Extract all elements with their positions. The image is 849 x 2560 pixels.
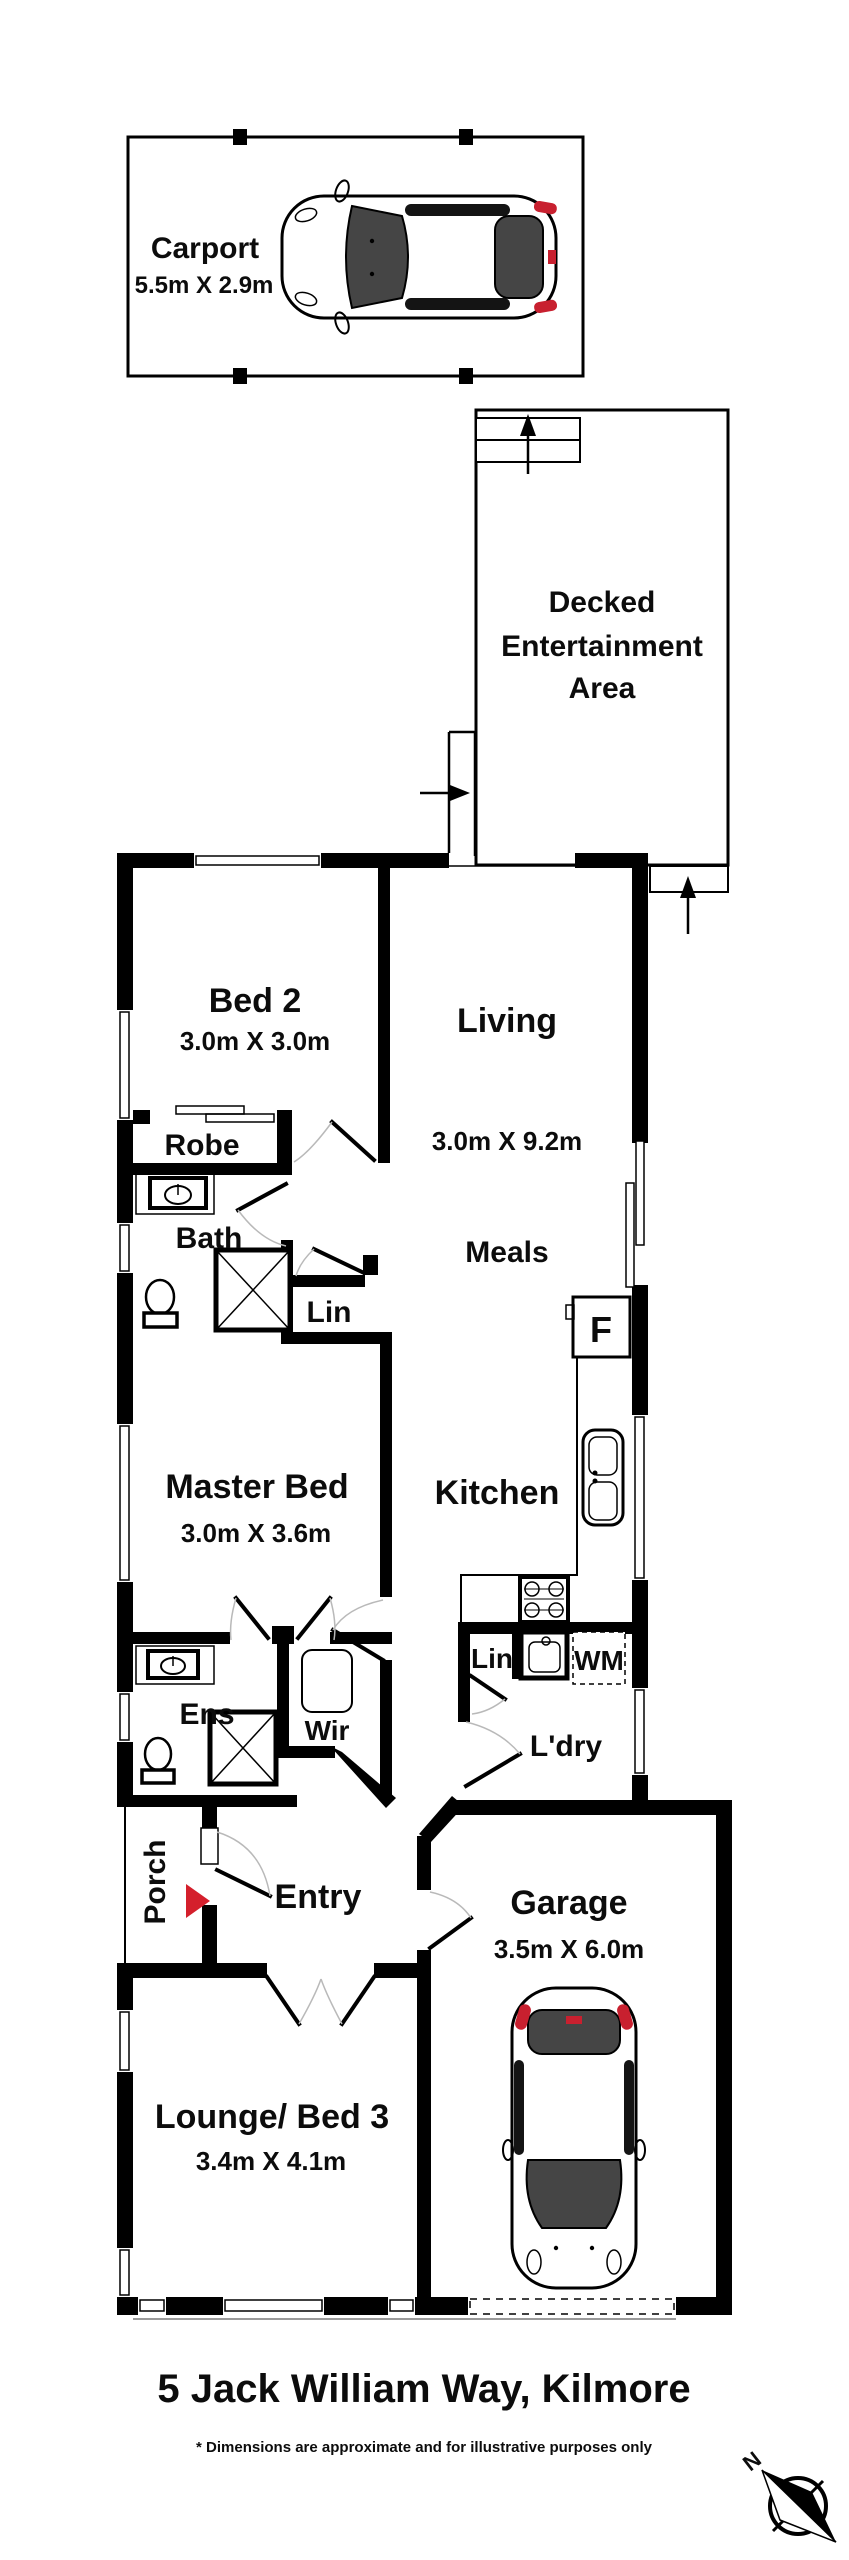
compass-north-label: N [738,2447,766,2476]
porch-label: Porch [139,1839,172,1924]
disclaimer-text: * Dimensions are approximate and for ill… [196,2439,653,2456]
footer: 5 Jack William Way, Kilmore * Dimensions… [157,2367,690,2456]
lounge-label: Lounge/ Bed 3 [155,2098,389,2136]
bed2-dims: 3.0m X 3.0m [180,1026,330,1056]
robe-label: Robe [165,1129,240,1162]
lin-hall-label: Lin [307,1296,352,1329]
bed2-label: Bed 2 [209,982,302,1020]
ens-vanity-icon [136,1646,214,1684]
window-lounge-left [120,2012,129,2070]
wall-lounge-top-left [117,1963,267,1978]
meals-label: Meals [465,1236,548,1269]
window-bed2-left [120,1012,129,1118]
compass-icon: N [738,2447,836,2542]
door-lin-laundry [471,1676,505,1714]
deck-label-line3: Area [569,672,636,705]
garage-dims: 3.5m X 6.0m [494,1934,644,1964]
door-garage-internal [430,1892,471,1948]
decked-entertainment-area: Decked Entertainment Area [420,410,728,934]
bath-label: Bath [176,1222,243,1255]
lin-laundry-label: Lin [471,1643,513,1674]
ens-toilet-icon [142,1738,174,1783]
carport-label: Carport [151,232,259,265]
wall-entry-garage [417,1836,431,1890]
entry-label: Entry [275,1878,362,1916]
wall-master-ens [133,1632,230,1644]
lounge-dims: 3.4m X 4.1m [196,2146,346,2176]
wall-lin-bottom [281,1332,392,1344]
window-kitchen [635,1417,644,1578]
wall-lounge-top-right [374,1963,431,1978]
sliding-door-meals-icon [626,1141,644,1287]
deck-label-line2: Entertainment [501,630,703,663]
car-windshield-icon [346,206,408,308]
angled-wall-garage [419,1796,464,1842]
wall-ens-wir [277,1640,289,1754]
master-label: Master Bed [165,1468,348,1506]
floorplan-page: Carport 5.5m X 2.9m Decked Entertainment… [0,0,849,2560]
deck-side-walkway [420,732,475,856]
door-lounge-double [267,1977,374,2024]
carport-car-icon [282,179,558,336]
kitchen-label: Kitchen [435,1474,560,1512]
wall-lounge-garage [417,1978,431,2297]
door-ens [231,1598,268,1640]
wall-wir-hall [380,1660,392,1800]
door-bath [238,1184,286,1246]
window-lounge-bottom1 [140,2300,164,2311]
car-rear-window-icon [495,216,543,298]
window-ens [120,1694,129,1740]
window-bath [120,1225,129,1271]
living-label: Living [457,1002,557,1040]
wall-laundry-left [458,1634,470,1722]
deck-label-line1: Decked [549,586,656,619]
bath-shower-icon [216,1250,290,1330]
window-master [120,1426,129,1580]
carport-dims: 5.5m X 2.9m [135,272,274,299]
garage-label: Garage [510,1884,627,1922]
address-title: 5 Jack William Way, Kilmore [157,2367,690,2411]
deck-rear-step-icon [650,866,728,934]
laundry-trough-icon [521,1632,567,1678]
wall-bed2-living [378,868,390,1163]
wall-front-upper [202,1807,217,1830]
door-bed2 [294,1122,374,1162]
window-lounge-left2 [120,2250,129,2295]
window-bed2-top [196,856,319,865]
wm-label: WM [574,1645,624,1676]
garage-car-icon [503,1988,645,2288]
wir-label: Wir [305,1715,350,1746]
bath-toilet-icon [144,1280,177,1327]
wall-robe-bottom [133,1163,285,1175]
door-front [201,1828,270,1896]
ens-label: Ens [179,1698,234,1731]
window-lounge-bottom3 [390,2300,413,2311]
window-lounge-bottom2 [225,2300,322,2311]
door-lin-hall [296,1249,362,1276]
garage-door-dashed [470,2299,674,2314]
wall-ens-bottom [117,1795,297,1807]
car-windshield-icon [527,2160,622,2228]
living-dims: 3.0m X 9.2m [432,1126,582,1156]
door-wir [298,1598,335,1640]
carport: Carport 5.5m X 2.9m [128,129,583,384]
bath-vanity-icon [136,1172,214,1214]
cooktop-icon [520,1577,568,1622]
wall-lin-top [281,1275,365,1287]
wall-master-kitchen [380,1332,392,1597]
floorplan-svg: Carport 5.5m X 2.9m Decked Entertainment… [0,0,849,2560]
door-laundry [466,1722,520,1786]
wall-front-lower [202,1905,217,1963]
laundry-label: L'dry [530,1730,602,1763]
master-dims: 3.0m X 3.6m [181,1518,331,1548]
window-laundry [635,1690,644,1773]
wir-wardrobe-icon [302,1650,352,1712]
fridge-label: F [590,1309,612,1350]
robe-sliding-doors-icon [176,1106,274,1122]
